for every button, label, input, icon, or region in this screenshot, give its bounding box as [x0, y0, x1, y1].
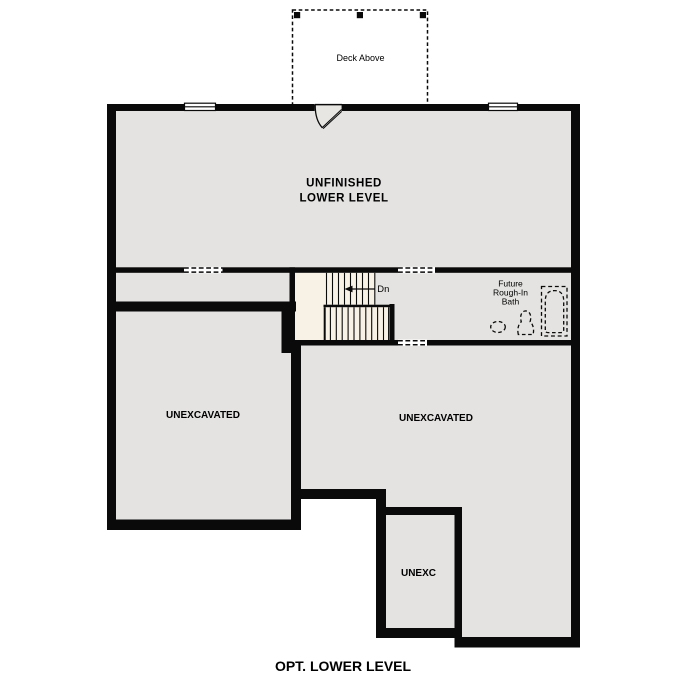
svg-text:UNEXC: UNEXC	[401, 568, 436, 579]
svg-text:OPT. LOWER LEVEL: OPT. LOWER LEVEL	[275, 658, 412, 674]
svg-text:Deck Above: Deck Above	[336, 53, 384, 63]
svg-text:LOWER LEVEL: LOWER LEVEL	[299, 193, 388, 205]
svg-text:UNEXCAVATED: UNEXCAVATED	[399, 413, 473, 424]
svg-text:UNEXCAVATED: UNEXCAVATED	[166, 410, 240, 421]
svg-text:Bath: Bath	[502, 296, 520, 306]
svg-text:Dn: Dn	[377, 283, 389, 294]
svg-text:UNFINISHED: UNFINISHED	[306, 178, 382, 190]
